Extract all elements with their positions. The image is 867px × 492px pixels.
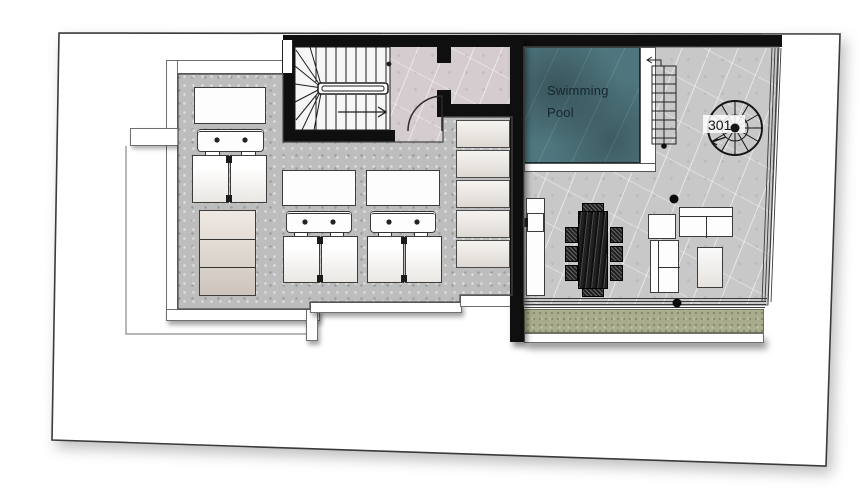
dining-chair: [610, 265, 623, 281]
walkway-step: [306, 309, 318, 341]
dining-chair: [565, 265, 578, 281]
sun-lounger: [230, 155, 267, 203]
walkway-band-bottom-right: [460, 295, 512, 307]
walkway-band-bottom-left: [166, 309, 320, 321]
sofa-cushion-divider: [706, 217, 707, 238]
grass-edge-strip: [524, 333, 764, 343]
sofa-top: [679, 207, 733, 237]
stair-window: [282, 40, 293, 73]
daybed-divider: [200, 267, 255, 268]
stair-room-floor: [295, 47, 390, 130]
sun-lounger: [283, 236, 320, 283]
dining-chair: [610, 227, 623, 243]
pool-label: Swimming Pool: [547, 80, 627, 124]
counter-tap: [522, 218, 528, 227]
lounger-flat-c: [366, 170, 440, 206]
dining-chair: [565, 227, 578, 243]
lounger-headrest-b: [286, 211, 352, 233]
walkway-band-top: [166, 60, 292, 74]
storage-unit: [456, 240, 510, 268]
counter-fixture: [527, 213, 544, 232]
sofa-back: [651, 241, 659, 292]
coffee-table: [697, 247, 723, 288]
sofa-back: [680, 208, 732, 217]
wall-stair-bottom: [283, 130, 395, 142]
planter-bar: [130, 128, 186, 146]
lounger-headrest-c: [370, 211, 436, 233]
lounger-joint: [226, 156, 232, 163]
dining-chair: [582, 288, 604, 297]
sun-lounger: [321, 236, 358, 283]
sofa-left: [650, 240, 679, 293]
daybed: [199, 210, 256, 296]
lounger-flat-a: [194, 87, 266, 124]
pool-surround-bottom: [524, 163, 656, 172]
walkway-band-left: [166, 60, 178, 321]
grass-strip: [524, 309, 764, 333]
wall-stub-top: [437, 47, 451, 63]
lounger-headrest-a: [197, 129, 264, 152]
storage-unit: [456, 180, 510, 208]
sun-lounger: [192, 155, 229, 203]
sun-lounger: [405, 236, 442, 283]
lounger-flat-b: [282, 170, 356, 206]
lounger-joint: [226, 195, 232, 202]
storage-unit: [456, 150, 510, 178]
lounger-joint: [401, 237, 407, 244]
walkway-band-bottom-mid: [310, 302, 462, 313]
wall-top: [285, 35, 782, 47]
storage-unit: [456, 120, 510, 148]
floor-plan-canvas: Swimming Pool: [0, 0, 867, 492]
pool-surround-right: [640, 47, 656, 172]
lounger-joint: [401, 275, 407, 282]
dining-chair: [610, 246, 623, 262]
dining-chair: [565, 246, 578, 262]
wall-divider: [510, 35, 524, 342]
wall-hall-south: [437, 104, 512, 117]
sofa-cushion-divider: [659, 267, 680, 268]
armchair: [648, 214, 676, 239]
lounger-joint: [317, 237, 323, 244]
storage-unit: [456, 210, 510, 238]
lounger-joint: [317, 275, 323, 282]
dining-table: [578, 211, 608, 289]
sun-lounger: [367, 236, 404, 283]
daybed-divider: [200, 239, 255, 240]
